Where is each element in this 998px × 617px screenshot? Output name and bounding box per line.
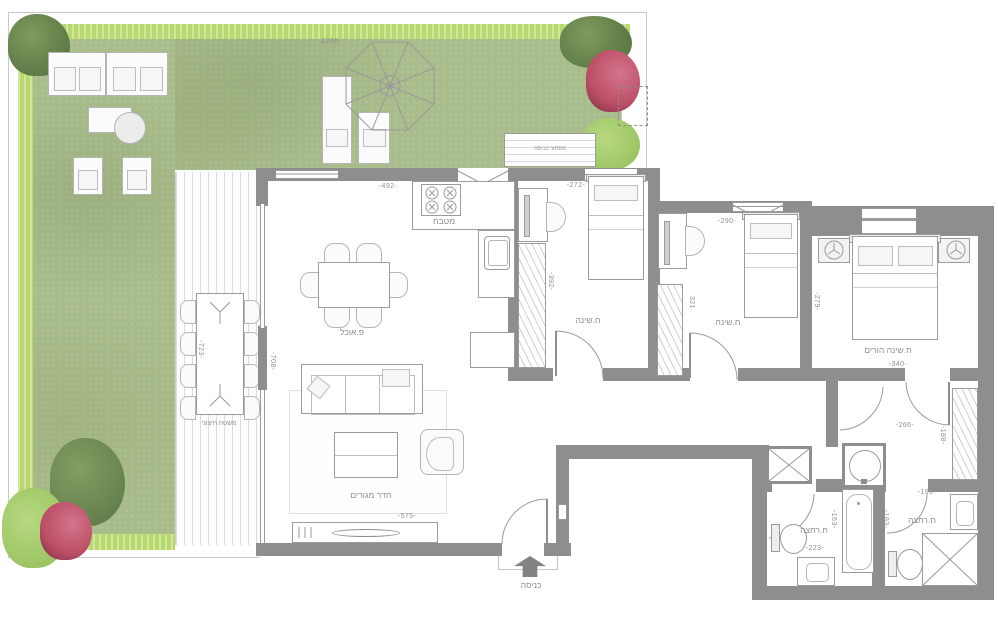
- sofa-throw: [382, 369, 410, 387]
- blanket-line: [589, 229, 643, 230]
- living-window-north: [276, 170, 338, 179]
- dim-bedroom1-width: -272-: [567, 182, 585, 189]
- dim-master-width: -340-: [889, 361, 907, 368]
- flower-bush-bottom-left: [40, 502, 92, 560]
- desk-monitor: [664, 221, 670, 265]
- shaft-cross: [769, 449, 809, 481]
- living-window-west-2: [260, 390, 265, 543]
- sofa-cushion: [113, 67, 136, 91]
- sofa-cushion: [54, 67, 76, 91]
- bedroom1-label: ח.שינה: [575, 315, 600, 325]
- master-door: [905, 381, 950, 426]
- master-bed: [852, 236, 938, 340]
- master-door-opening: [905, 368, 950, 381]
- electrical-panel: [558, 504, 567, 520]
- entrance-door: [500, 492, 550, 546]
- bed-pillow: [594, 185, 638, 201]
- garden-round-table: [114, 112, 146, 144]
- bedroom1-bed: [588, 176, 644, 280]
- outdoor-chair: [244, 300, 260, 324]
- bedside-lamp: [946, 240, 966, 260]
- armchair: [420, 429, 464, 475]
- sofa-divider: [345, 375, 346, 413]
- bedroom2-bed: [744, 214, 798, 318]
- outdoor-chair: [180, 332, 196, 356]
- parasol: [340, 36, 440, 136]
- hedge-left: [18, 24, 33, 550]
- dim-bedroom2-width: -290-: [718, 218, 736, 225]
- dim-bedroom2-depth: 321: [688, 296, 695, 309]
- garden-sofa: [48, 52, 106, 96]
- outdoor-chair: [180, 300, 196, 324]
- floor-plan: מסתור כביסה -1266- משטח חיצוני -723-: [0, 0, 998, 617]
- wall-west-bathrooms: [752, 445, 767, 600]
- coffee-table-shelf: [335, 455, 397, 456]
- basin-faucet: [861, 479, 867, 484]
- tv-screen: [332, 529, 400, 537]
- entrance-label: כניסה: [521, 580, 542, 590]
- dim-master-depth: -279-: [813, 292, 820, 310]
- wall-hall-south: [556, 445, 769, 459]
- bedroom2-desk: [658, 213, 687, 269]
- dining-chair: [356, 306, 382, 328]
- dim-bathroom2-depth: -183-: [882, 510, 889, 528]
- foyer-closet: [952, 388, 978, 480]
- bedroom2-desk-chair: [685, 226, 705, 256]
- bedside-lamp: [824, 240, 844, 260]
- dim-hall-depth: -188-: [939, 426, 946, 444]
- dim-kitchen-width: -492-: [379, 183, 397, 190]
- wall-foyer-stub: [826, 381, 838, 447]
- wall-south-bathrooms: [752, 586, 994, 600]
- master-window: [862, 208, 916, 234]
- master-label: ח.שינה הורים: [864, 345, 911, 355]
- wall-master-west: [800, 241, 812, 368]
- foyer-door: [838, 385, 884, 431]
- desk-monitor: [524, 195, 530, 237]
- bathtub-drain: [857, 502, 860, 505]
- armchair-cushion: [127, 170, 147, 190]
- bathroom1-label: ח.רחצה: [800, 525, 828, 535]
- toilet-tank: [888, 551, 897, 577]
- kitchen-sink: [484, 236, 510, 270]
- bedroom1-door: [556, 330, 604, 378]
- garden-sofa: [106, 52, 168, 96]
- bedroom1-desk: [518, 188, 548, 242]
- bottles: [296, 525, 316, 540]
- dim-living-depth: -708-: [269, 352, 276, 370]
- sofa-cushion: [79, 67, 101, 91]
- bed-pillow: [750, 223, 792, 239]
- sofa: [301, 364, 423, 414]
- bedroom1-closet: [518, 243, 546, 368]
- dim-bathroom2-width: -199-: [918, 489, 936, 496]
- blanket-line: [745, 253, 797, 254]
- bedroom2-label: ח.שינה: [715, 317, 740, 327]
- dim-deck-length: -723-: [197, 340, 204, 358]
- wash-basin: [849, 450, 881, 482]
- dining-table: [318, 262, 390, 308]
- outdoor-chair: [244, 396, 260, 420]
- dim-garden-width: -1266-: [319, 38, 342, 45]
- outdoor-chair: [180, 396, 196, 420]
- ac-unit-outline: [618, 86, 648, 126]
- bedroom2-closet: [657, 284, 683, 376]
- bathtub: [842, 489, 874, 573]
- living-window-west: [260, 204, 265, 328]
- deck-label: משטח חיצוני: [202, 420, 237, 427]
- wall-east: [978, 236, 994, 600]
- bathtub-basin: [846, 494, 872, 570]
- armchair-seat: [426, 437, 454, 471]
- stove-burners: [421, 184, 461, 216]
- hedge-top: [18, 24, 630, 39]
- dim-bathroom1-width: -223-: [806, 545, 824, 552]
- blanket-line: [853, 287, 937, 288]
- vanity-basin: [806, 563, 829, 582]
- bed-pillow: [898, 246, 933, 266]
- bathroom2-sink: [950, 494, 978, 530]
- dining-chair: [300, 272, 320, 298]
- garden-armchair: [122, 157, 152, 195]
- wall-west-segment-1: [256, 168, 268, 206]
- wall-step-2: [800, 201, 812, 241]
- sink-basin: [488, 240, 508, 266]
- table-leg-marks: [206, 300, 234, 410]
- garden-armchair: [73, 157, 103, 195]
- toilet-bowl: [897, 549, 923, 580]
- dim-hall-width: -266-: [896, 422, 914, 429]
- bedroom1-desk-chair: [546, 202, 566, 232]
- bed-pillow: [858, 246, 893, 266]
- dining-label: פ.אוכל: [340, 327, 364, 337]
- blanket-line: [589, 215, 643, 216]
- terrace-boundary-top: [8, 12, 647, 13]
- dining-chair: [324, 306, 350, 328]
- kitchen-label: מטבח: [433, 216, 455, 226]
- dim-bathroom1-depth: -163-: [830, 510, 837, 528]
- wall-living-east: [556, 445, 569, 556]
- blanket-line: [745, 267, 797, 268]
- toilet-tank: [771, 524, 780, 552]
- armchair-cushion: [78, 170, 98, 190]
- laundry-screen-label: מסתור כביסה: [534, 146, 566, 152]
- blanket-line: [853, 273, 937, 274]
- sink-basin: [956, 501, 974, 526]
- coffee-table: [334, 432, 398, 478]
- dining-chair: [388, 272, 408, 298]
- sofa-cushion: [140, 67, 163, 91]
- bedroom2-door: [690, 332, 738, 380]
- shower-cross: [922, 533, 978, 586]
- dim-living-width: -575-: [398, 513, 416, 520]
- dim-bedroom1-depth: -392-: [547, 272, 554, 290]
- terrace-boundary-left: [8, 12, 9, 558]
- living-label: חדר מגורים: [350, 490, 391, 500]
- bathroom2-label: ח.רחצה: [908, 515, 936, 525]
- wall-west-segment-2: [258, 326, 267, 390]
- bathroom1-vanity: [797, 557, 835, 586]
- wall-south-living: [256, 543, 502, 556]
- sofa-divider: [379, 375, 380, 413]
- kitchen-island-cabinet: [470, 332, 515, 368]
- outdoor-chair: [180, 364, 196, 388]
